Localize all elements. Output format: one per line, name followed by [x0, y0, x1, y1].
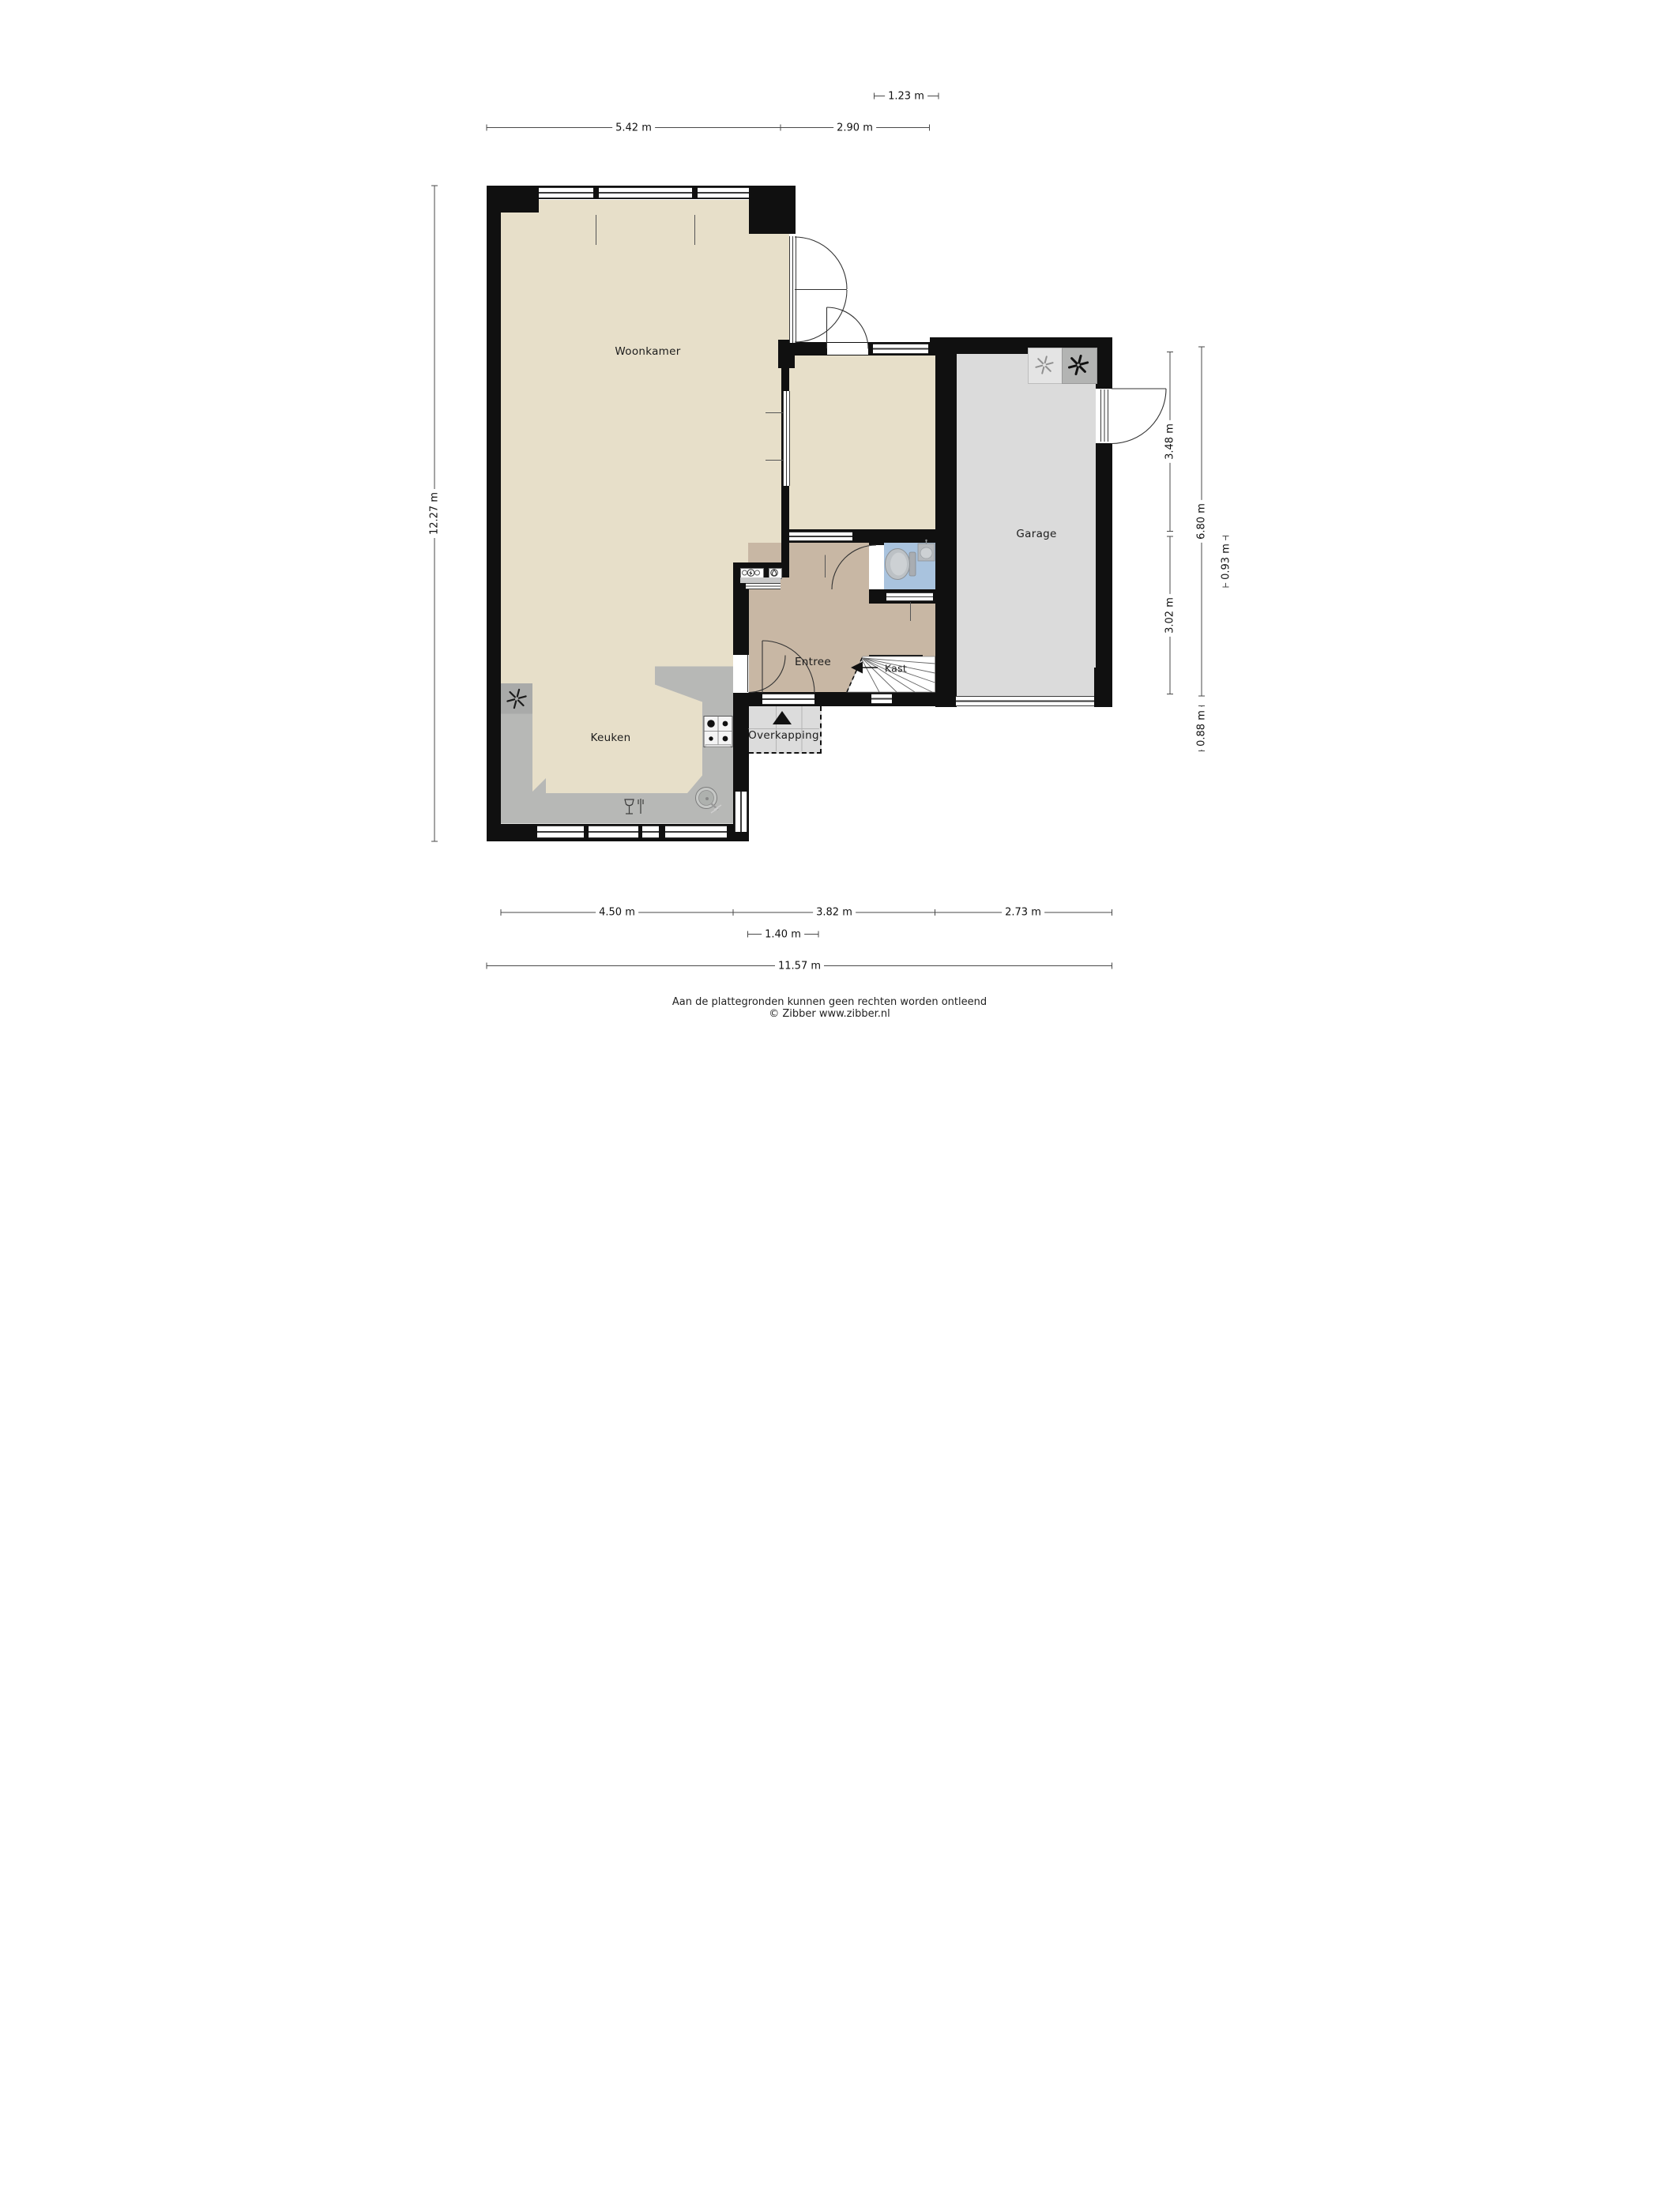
window-dining-woonkamer: [783, 391, 790, 486]
wall-left: [487, 186, 501, 841]
garage-sectional-door: [956, 696, 1094, 706]
garage-door-frame: [1100, 389, 1108, 442]
dim-bottom-2-73: 2.73 m: [1002, 907, 1044, 919]
room-label-garage: Garage: [1016, 528, 1056, 540]
room-label-kast: Kast: [885, 663, 907, 675]
window-woonkamer-north-3: [698, 187, 749, 198]
window-dining-entree: [789, 532, 853, 541]
dim-left-12-27: 12.27 m: [429, 489, 441, 538]
dim-top-5-42: 5.42 m: [612, 122, 655, 134]
meter-shelf: [740, 577, 781, 583]
dining-floor: [789, 355, 935, 529]
dim-right-0-88: 0.88 m: [1196, 707, 1208, 750]
window-keuken-south-1: [537, 826, 584, 838]
wall-garage-south-left-corner: [935, 692, 957, 707]
front-door-sill: [762, 694, 814, 705]
dim-top-2-90: 2.90 m: [833, 122, 876, 134]
footer-disclaimer: Aan de plattegronden kunnen geen rechten…: [415, 996, 1244, 1008]
window-dining-north: [873, 344, 928, 354]
garage-floor: [957, 354, 1096, 697]
room-label-woonkamer: Woonkamer: [615, 345, 680, 358]
dim-right-3-02: 3.02 m: [1164, 594, 1176, 637]
ventilation-unit: [501, 683, 532, 714]
french-doors-swing: [795, 237, 847, 342]
dim-right-0-93: 0.93 m: [1220, 540, 1232, 583]
dining-terrace-door-opening: [827, 343, 869, 355]
window-woonkamer-north-1: [539, 187, 593, 198]
keuken-floor: [501, 562, 733, 794]
window-keuken-east: [735, 792, 747, 832]
garage-side-door-swing: [1112, 389, 1166, 444]
room-label-overkapping: Overkapping: [748, 729, 819, 742]
window-keuken-south-3: [642, 826, 659, 838]
dim-bottom-3-82: 3.82 m: [813, 907, 856, 919]
wall-garage-left: [935, 337, 957, 708]
dim-bottom-1-40: 1.40 m: [762, 928, 804, 940]
dryer: [1062, 348, 1097, 384]
french-doors-frame: [789, 236, 796, 343]
window-woonkamer-north-2: [599, 187, 692, 198]
room-label-entree: Entree: [795, 656, 831, 668]
dim-right-6-80: 6.80 m: [1196, 500, 1208, 543]
dishwasher-icon: [625, 799, 643, 814]
wall-garage-south-right-corner: [1094, 668, 1112, 707]
window-keuken-south-4: [665, 826, 728, 838]
window-stairs-south: [871, 694, 892, 704]
window-meter-cupboard: [746, 583, 781, 589]
woonkamer-floor: [501, 200, 789, 562]
dim-bottom-4-50: 4.50 m: [596, 907, 638, 919]
dim-top-1-23: 1.23 m: [885, 90, 927, 102]
floorplan-page: Woonkamer Keuken Entree Kast Garage Over…: [415, 0, 1244, 1106]
dim-right-3-48: 3.48 m: [1164, 420, 1176, 463]
room-label-keuken: Keuken: [590, 732, 630, 744]
washer: [1028, 348, 1063, 384]
toilet-door-opening: [869, 545, 884, 589]
wall-top-right-corner: [749, 186, 796, 234]
dim-bottom-11-57: 11.57 m: [775, 960, 824, 972]
toilet-floor: [884, 543, 935, 589]
window-keuken-south-2: [589, 826, 638, 838]
wall-top-left-corner: [487, 186, 539, 213]
keuken-entree-door-opening: [733, 655, 749, 693]
footer-copyright: © Zibber www.zibber.nl: [415, 1008, 1244, 1020]
window-toilet-entree: [886, 592, 933, 601]
